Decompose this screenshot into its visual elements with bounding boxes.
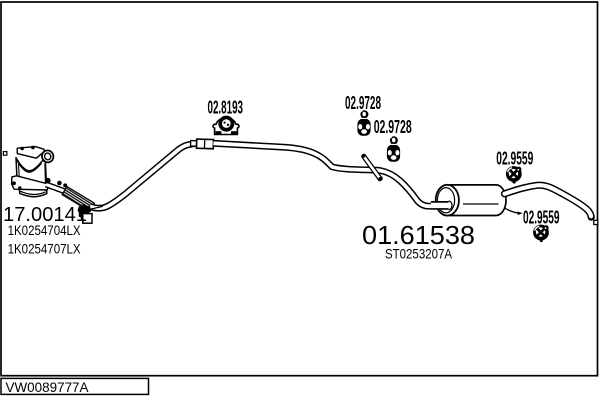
- svg-text:ST0253207A: ST0253207A: [385, 247, 453, 262]
- svg-text:02.9728: 02.9728: [345, 93, 381, 113]
- svg-text:02.8193: 02.8193: [208, 98, 244, 118]
- svg-text:02.9559: 02.9559: [496, 149, 533, 169]
- svg-text:1K0254704LX: 1K0254704LX: [8, 222, 82, 238]
- svg-text:02.9728: 02.9728: [374, 117, 412, 137]
- svg-text:02.9559: 02.9559: [523, 207, 560, 227]
- svg-text:1K0254707LX: 1K0254707LX: [8, 240, 82, 256]
- svg-text:VW0089777A: VW0089777A: [6, 380, 90, 395]
